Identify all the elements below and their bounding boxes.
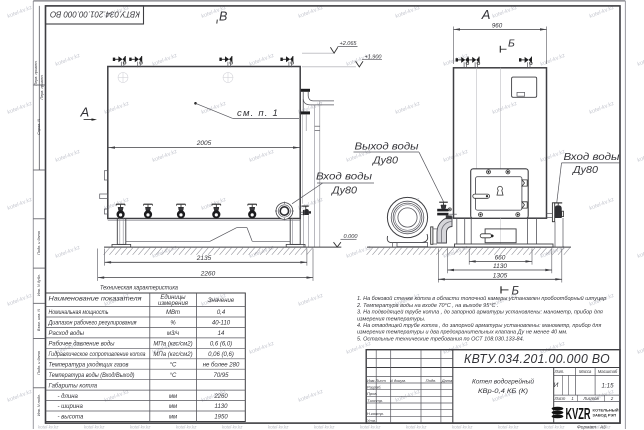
svg-text:Расход воды: Расход воды <box>49 331 85 337</box>
svg-text:Наименование показателя: Наименование показателя <box>49 296 143 302</box>
svg-text:Листов: Листов <box>582 396 599 401</box>
svg-text:ЗАВОД РЭП: ЗАВОД РЭП <box>593 413 617 418</box>
svg-text:Перв. примен.: Перв. примен. <box>34 60 38 85</box>
svg-text:Ду80: Ду80 <box>372 154 398 166</box>
svg-text:Подп. и дата: Подп. и дата <box>37 231 41 255</box>
svg-text:1950: 1950 <box>214 415 228 421</box>
svg-text:kotel-kv.kz: kotel-kv.kz <box>84 425 105 430</box>
svg-text:1. На боковой стенке котла в: 1. На боковой стенке котла в области топ… <box>357 295 606 302</box>
svg-text:40-110: 40-110 <box>212 321 231 327</box>
svg-text:KVZR: KVZR <box>566 406 591 423</box>
svg-text:Подп. и дата: Подп. и дата <box>37 351 41 375</box>
svg-text:Габариты котла: Габариты котла <box>49 383 98 389</box>
svg-text:измерения: измерения <box>158 301 189 307</box>
svg-text:Рабочее давление воды: Рабочее давление воды <box>49 342 116 348</box>
svg-text:kotel-kv.kz: kotel-kv.kz <box>176 425 197 430</box>
svg-text:0,06 (0,6): 0,06 (0,6) <box>208 352 234 358</box>
svg-text:не более 280: не более 280 <box>203 362 240 368</box>
svg-text:Инв. N дубл.: Инв. N дубл. <box>37 274 41 296</box>
svg-text:Техническая характеристика: Техническая характеристика <box>100 284 178 291</box>
svg-text:Взам. инв. N: Взам. инв. N <box>37 309 41 331</box>
svg-text:2005: 2005 <box>196 140 212 147</box>
svg-text:Пров.: Пров. <box>367 391 378 396</box>
svg-text:Номинальная мощность: Номинальная мощность <box>49 310 109 316</box>
svg-text:Гидравлическое сопротивление к: Гидравлическое сопротивление котла <box>49 352 147 358</box>
svg-text:Справ. N: Справ. N <box>37 119 41 135</box>
svg-text:- длина: - длина <box>58 394 79 400</box>
svg-text:Б: Б <box>508 38 515 50</box>
svg-text:0,6 (6,0): 0,6 (6,0) <box>210 342 232 348</box>
svg-text:Дата: Дата <box>441 378 453 383</box>
svg-text:МПа (кгс/см2): МПа (кгс/см2) <box>153 342 192 348</box>
svg-text:Лит.: Лит. <box>554 369 565 374</box>
svg-text:960: 960 <box>492 23 503 30</box>
svg-text:70/95: 70/95 <box>213 373 229 379</box>
svg-text:мм: мм <box>169 404 177 410</box>
svg-text:Изм.Лист: Изм.Лист <box>367 378 386 383</box>
svg-text:N докум.: N докум. <box>390 378 406 383</box>
svg-text:Разраб.: Разраб. <box>367 385 381 390</box>
svg-text:МПа (кгс/см2): МПа (кгс/см2) <box>153 352 192 358</box>
svg-text:Котел водогрейный: Котел водогрейный <box>472 378 534 386</box>
svg-text:Вход воды: Вход воды <box>316 171 372 183</box>
svg-text:А3: А3 <box>599 424 606 429</box>
svg-text:660: 660 <box>495 254 506 261</box>
svg-text:Н.контр.: Н.контр. <box>367 411 384 416</box>
svg-text:А: А <box>80 105 90 120</box>
svg-text:Ду80: Ду80 <box>572 164 598 176</box>
svg-text:измерения температуры.: измерения температуры. <box>357 316 425 322</box>
svg-text:мм: мм <box>169 415 177 421</box>
svg-text:°С: °С <box>170 362 177 368</box>
svg-text:Инв. N подл.: Инв. N подл. <box>37 394 41 416</box>
svg-text:мм: мм <box>169 394 177 400</box>
svg-text:Т.контр.: Т.контр. <box>367 398 383 403</box>
svg-text:2135: 2135 <box>196 255 212 262</box>
svg-text:Перв. примен.: Перв. примен. <box>40 74 44 99</box>
svg-text:МВт: МВт <box>166 310 180 316</box>
svg-text:2260: 2260 <box>213 394 228 400</box>
svg-text:1305: 1305 <box>493 272 508 279</box>
svg-text:- высота: - высота <box>58 415 84 421</box>
svg-text:Температура воды (Вход/Выход): Температура воды (Вход/Выход) <box>49 373 135 379</box>
svg-text:измерения температуры и два пр: измерения температуры и два предохраните… <box>357 330 568 336</box>
svg-text:kotel-kv.kz: kotel-kv.kz <box>130 425 151 430</box>
svg-text:14: 14 <box>218 331 225 337</box>
svg-text:Значение: Значение <box>208 298 235 304</box>
svg-text:5. Остальные технические треб: 5. Остальные технические требования по О… <box>357 336 524 342</box>
svg-text:2. Температура воды на входе: 2. Температура воды на входе 70°С , на в… <box>356 303 499 309</box>
svg-text:kotel-kv.kz: kotel-kv.kz <box>498 425 519 430</box>
svg-text:Вход воды: Вход воды <box>564 151 620 163</box>
svg-text:4. На отводящей трубе котла ,: 4. На отводящей трубе котла , до запорно… <box>357 322 601 329</box>
svg-text:КВТУ.034.201.00.000 ВО: КВТУ.034.201.00.000 ВО <box>50 9 140 19</box>
svg-text:kotel-kv.kz: kotel-kv.kz <box>544 425 565 430</box>
svg-text:Масштаб: Масштаб <box>598 369 618 374</box>
svg-text:КВТУ.034.201.00.000 ВО: КВТУ.034.201.00.000 ВО <box>464 351 610 366</box>
svg-text:kotel-kv.kz: kotel-kv.kz <box>406 425 427 430</box>
svg-text:kotel-kv.kz: kotel-kv.kz <box>452 425 473 430</box>
svg-text:0,4: 0,4 <box>217 310 226 316</box>
svg-text:Ду80: Ду80 <box>331 184 357 196</box>
svg-text:kotel-kv.kz: kotel-kv.kz <box>38 425 59 430</box>
svg-text:- ширина: - ширина <box>58 404 84 410</box>
svg-text:А: А <box>481 7 491 22</box>
svg-text:2260: 2260 <box>200 270 216 277</box>
svg-text:КВр-0,4 КБ (К): КВр-0,4 КБ (К) <box>478 388 528 395</box>
svg-text:1130: 1130 <box>493 263 507 270</box>
svg-text:°С: °С <box>170 373 177 379</box>
svg-text:м3/ч: м3/ч <box>167 331 179 337</box>
svg-text:Утв.: Утв. <box>367 418 376 423</box>
svg-text:kotel-kv.kz: kotel-kv.kz <box>268 425 289 430</box>
svg-text:В: В <box>219 9 227 23</box>
svg-text:%: % <box>170 321 176 327</box>
svg-text:Формат: Формат <box>577 424 596 429</box>
svg-text:1: 1 <box>571 396 573 401</box>
svg-text:kotel-kv.kz: kotel-kv.kz <box>314 425 335 430</box>
svg-text:Подп.: Подп. <box>426 378 437 383</box>
svg-text:Температура уходящих газов: Температура уходящих газов <box>49 362 129 368</box>
svg-text:см. п. 1: см. п. 1 <box>237 108 279 119</box>
svg-text:3. На подводящей трубе котла: 3. На подводящей трубе котла , до запорн… <box>357 309 603 316</box>
svg-text:kotel-kv.kz: kotel-kv.kz <box>222 425 243 430</box>
svg-text:1130: 1130 <box>215 404 229 410</box>
svg-text:Масса: Масса <box>579 369 592 374</box>
svg-text:И: И <box>553 382 558 389</box>
svg-text:Выход воды: Выход воды <box>355 141 419 153</box>
svg-text:Лист: Лист <box>554 396 566 401</box>
svg-text:1:15: 1:15 <box>601 383 614 390</box>
svg-text:kotel-kv.kz: kotel-kv.kz <box>360 425 381 430</box>
svg-text:Диапазон рабочего регулировани: Диапазон рабочего регулирования <box>48 321 138 327</box>
